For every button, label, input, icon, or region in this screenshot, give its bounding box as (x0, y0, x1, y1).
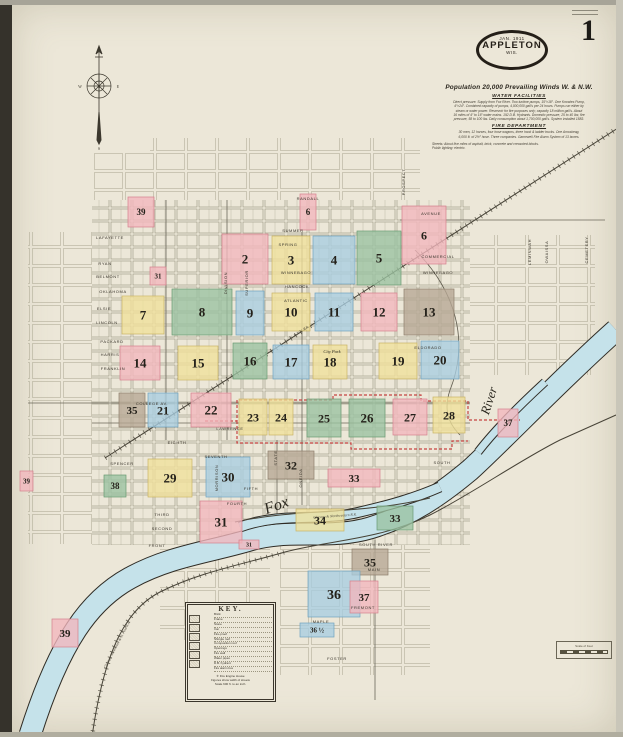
street-name-label: BELMONT (96, 274, 120, 279)
info-block: Population 20,000 Prevailing Winds W. & … (424, 84, 614, 152)
street-name-label: FREMONT (351, 605, 375, 610)
street-name-label: PROSPECT (401, 169, 406, 196)
text-line: Public lighting: electric. (432, 146, 614, 150)
street-name-label: OWAISSA (544, 241, 549, 264)
street-name-label: LEMINWAH (527, 239, 532, 265)
sheet-block-number: 33 (349, 473, 361, 485)
street-name-label: HANCOCK (285, 284, 309, 289)
railroad-name-label: Chicago, Milwaukee & St. Paul R.R. (103, 620, 132, 669)
sheet-block-number: 22 (205, 403, 218, 418)
key-building-symbol (189, 642, 200, 650)
key-legend: KEY. BrickFrameStoneIronFire-proofShingl… (185, 602, 276, 702)
sheet-block-number: 16 (244, 354, 258, 369)
sheet-block-number: 13 (423, 305, 437, 320)
sheet-block-number: 6 (421, 228, 427, 242)
street-name-label: FRANKLIN (101, 366, 126, 371)
sheet-block-number: 39 (60, 628, 72, 640)
sheet-block-number: 2 (242, 252, 249, 267)
sheet-block-number: 14 (134, 356, 148, 371)
compass-rose: N E W S (78, 46, 120, 151)
sheet-block-number: 11 (328, 305, 340, 320)
key-building-symbol (189, 615, 200, 623)
street-name-label: SECOND (152, 526, 173, 531)
sheet-block-number: 27 (404, 410, 416, 424)
sheet-block-number: 32 (285, 458, 297, 472)
key-building-symbol (189, 651, 200, 659)
street-name-label: WINNEBAGO (281, 270, 311, 275)
sheet-block-number: 39 (137, 207, 147, 217)
sheet-block-number: 5 (376, 251, 383, 266)
sheet-block-number: 31 (155, 273, 163, 281)
scale-bar (560, 650, 608, 654)
street-name-label: DIVISION (223, 272, 228, 294)
street-name-label: ELDORADO (414, 345, 441, 350)
sheet-block-number: 26 (361, 411, 375, 426)
compass-s-label: S (98, 146, 100, 151)
sheet-block-number: 23 (247, 410, 259, 424)
key-symbol-column (189, 613, 211, 672)
street-name-label: ONEIDA (298, 469, 303, 488)
sheet-block-number: 36 ½ (310, 627, 324, 635)
street-name-label: ELSIE (97, 306, 111, 311)
sheet-block-number: 38 (111, 481, 121, 491)
street-name-label: SPRING (279, 242, 298, 247)
key-scale-line: Scale 600 ft. to an inch. (189, 682, 272, 686)
sheet-block-number: 7 (140, 308, 147, 323)
sheet-block-number: 35 (127, 405, 139, 417)
compass-n-label: N (98, 84, 101, 89)
street-name-label: THIRD (154, 512, 169, 517)
sheet-block-number: 30 (222, 470, 235, 485)
street-name-label: FOURTH (227, 501, 247, 506)
street-name-label: COMMERCIAL (421, 254, 454, 259)
population-line: Population 20,000 Prevailing Winds W. & … (424, 84, 614, 91)
fire-department-text: 30 men, 12 horses, four hose wagons, thr… (424, 130, 614, 139)
street-name-label: LAFAYETTE (96, 235, 124, 240)
street-name-label: ATLANTIC (284, 298, 308, 303)
street-name-label: MORRISON (214, 465, 219, 492)
corner-mark (572, 10, 598, 11)
title-oval: JAN. 1911 APPLETON WIS. (476, 30, 548, 70)
sheet-block-number: 8 (199, 305, 206, 320)
street-name-label: WINNEBAGO (423, 270, 453, 275)
sheet-block-number: 20 (434, 353, 447, 368)
sheet-block-number: 33 (390, 513, 402, 525)
compass-needle (97, 112, 101, 144)
sheet-block-number: 37 (359, 592, 371, 604)
scan-edge-top (0, 0, 623, 5)
street-name-label: SEVENTH (204, 454, 227, 459)
water-facilities-text: Direct pressure. Supply from Fox River. … (424, 100, 614, 121)
street-name-label: SOUTH RIVER (359, 542, 393, 547)
place-name-label: River (477, 384, 501, 417)
street-name-label: EIGHTH (168, 440, 187, 445)
key-building-symbol (189, 624, 200, 632)
sheet-block-number: 19 (392, 354, 406, 369)
key-entries: BrickFrameStoneIronFire-proofShingle roo… (214, 613, 272, 672)
scale-stamp: Scale of Feet (556, 641, 612, 659)
scan-edge-right (616, 0, 623, 737)
sheet-block-number: 12 (373, 305, 386, 320)
compass-e-label: E (117, 84, 120, 89)
sheet-block-number: 9 (247, 306, 254, 321)
street-name-label: FRONT (149, 543, 166, 548)
sheet-number: 1 (581, 14, 596, 48)
street-name-label: MAIN (368, 567, 380, 572)
street-name-label: SUPERIOR (244, 270, 249, 296)
street-name-label: LAWRENCE (216, 426, 243, 431)
street-name-label: FOSTER (327, 656, 347, 661)
scale-stamp-label: Scale of Feet (560, 644, 608, 648)
sheet-block-number: 15 (192, 356, 206, 371)
sheet-block-number: 36 (327, 588, 341, 603)
street-name-label: CEMETERY (584, 237, 589, 264)
scan-edge-bottom (0, 732, 623, 737)
street-name-label: SOUTH (434, 460, 451, 465)
sheet-block-number: 25 (318, 411, 330, 425)
street-name-label: STATE (273, 450, 278, 465)
title-city: APPLETON (479, 41, 545, 50)
compass-w-label: W (78, 84, 82, 89)
street-name-label: HARRIS (101, 352, 120, 357)
text-line: 6,000 ft. of 2½″ hose. Three companies. … (424, 135, 614, 139)
sheet-block-number: 31 (215, 515, 228, 530)
sheet-block-number: 24 (275, 410, 287, 424)
sheet-block-number: 28 (443, 408, 455, 422)
sheet-block-number: 4 (331, 253, 338, 268)
sheet-block-number: 3 (288, 253, 295, 268)
scan-edge-left (0, 0, 12, 737)
sheet-block-number: 17 (285, 355, 299, 370)
street-name-label: LINCOLN (96, 320, 118, 325)
street-name-label: AVENUE (421, 211, 441, 216)
street-name-label: OKLAHOMA (99, 289, 126, 294)
water-facilities-heading: WATER FACILITIES (424, 94, 614, 99)
sheet-block-number: 39 (23, 478, 31, 486)
key-title: KEY. (189, 605, 272, 613)
street-name-label: PACKARD (100, 339, 123, 344)
key-entry: Fire alarm box (214, 667, 272, 672)
place-name-label: City Park (323, 349, 341, 354)
text-line: pressure, 58 to 100 lbs. Daily consumpti… (424, 117, 614, 121)
street-name-label: RANDALL (297, 196, 320, 201)
street-name-label: SPENCER (110, 461, 134, 466)
streets-note-text: Streets: About five miles of asphalt, br… (424, 142, 614, 151)
sheet-block-number: 29 (164, 471, 178, 486)
sheet-block-number: 18 (324, 355, 338, 370)
street-name-label: RYAN (98, 261, 111, 266)
sheet-block-number: 37 (504, 418, 514, 428)
street-name-label: MAPLE (313, 619, 330, 624)
fire-department-heading: FIRE DEPARTMENT (424, 124, 614, 129)
street-name-label: FIFTH (244, 486, 258, 491)
street-name-label: COLLEGE AV. (136, 401, 168, 406)
key-building-symbol (189, 660, 200, 668)
street-name-label: SUMMER (282, 228, 303, 233)
key-building-symbol (189, 633, 200, 641)
sheet-block-number: 10 (285, 305, 298, 320)
sheet-block-number: 6 (306, 207, 311, 217)
sheet-block-number: 31 (246, 543, 252, 549)
